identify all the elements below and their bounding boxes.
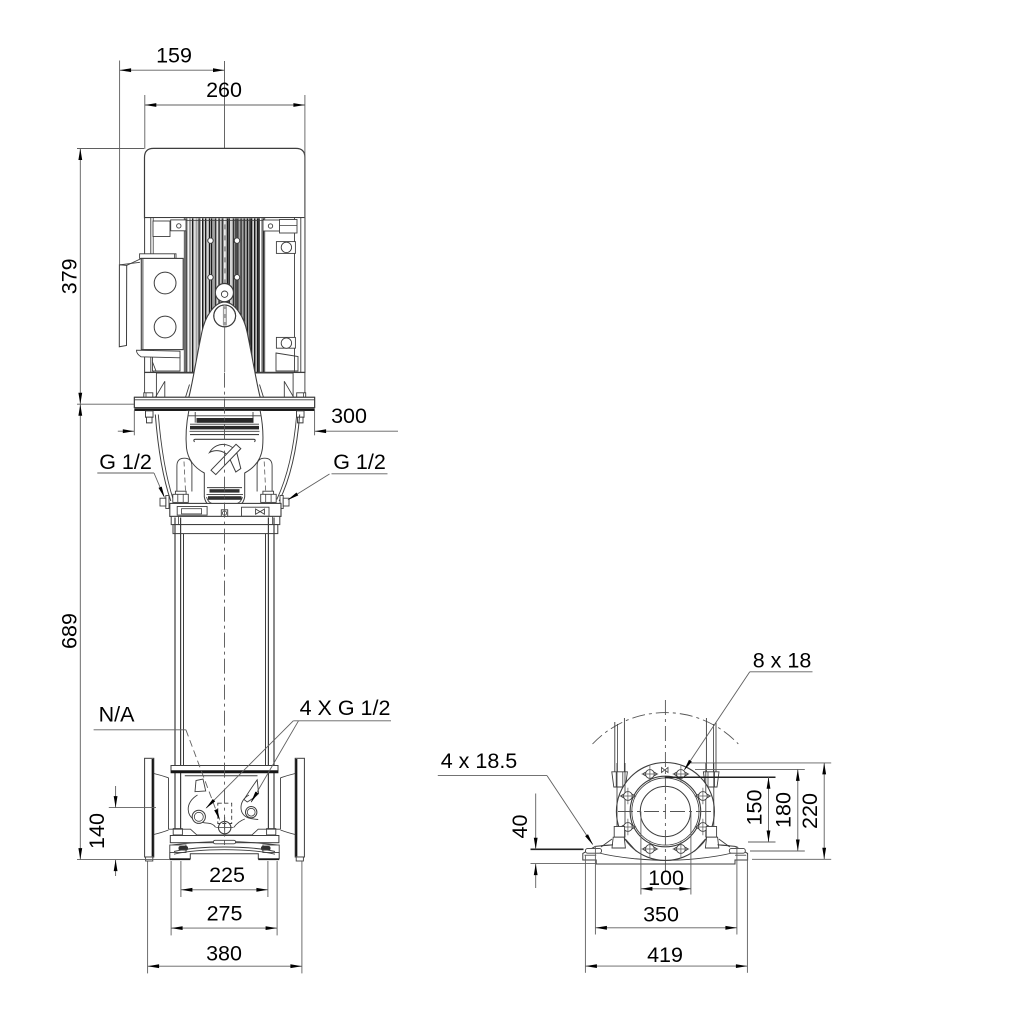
svg-text:150: 150	[743, 790, 767, 826]
svg-text:275: 275	[207, 901, 243, 925]
svg-text:4 X G 1/2: 4 X G 1/2	[300, 696, 391, 720]
svg-text:300: 300	[331, 404, 367, 428]
svg-text:N/A: N/A	[99, 703, 136, 727]
svg-text:8 x 18: 8 x 18	[753, 648, 812, 672]
svg-text:G 1/2: G 1/2	[333, 450, 386, 474]
svg-text:159: 159	[156, 43, 192, 67]
svg-text:689: 689	[58, 613, 82, 649]
svg-text:225: 225	[209, 863, 245, 887]
svg-text:379: 379	[58, 258, 82, 294]
svg-text:40: 40	[508, 815, 532, 839]
svg-text:380: 380	[206, 942, 242, 966]
svg-text:180: 180	[772, 792, 796, 828]
svg-text:140: 140	[85, 813, 109, 849]
svg-text:220: 220	[798, 793, 822, 829]
svg-text:100: 100	[648, 866, 684, 890]
svg-text:4 x 18.5: 4 x 18.5	[441, 749, 518, 773]
svg-text:350: 350	[643, 902, 679, 926]
svg-text:419: 419	[647, 943, 683, 967]
svg-text:G 1/2: G 1/2	[99, 450, 152, 474]
svg-text:260: 260	[206, 78, 242, 102]
